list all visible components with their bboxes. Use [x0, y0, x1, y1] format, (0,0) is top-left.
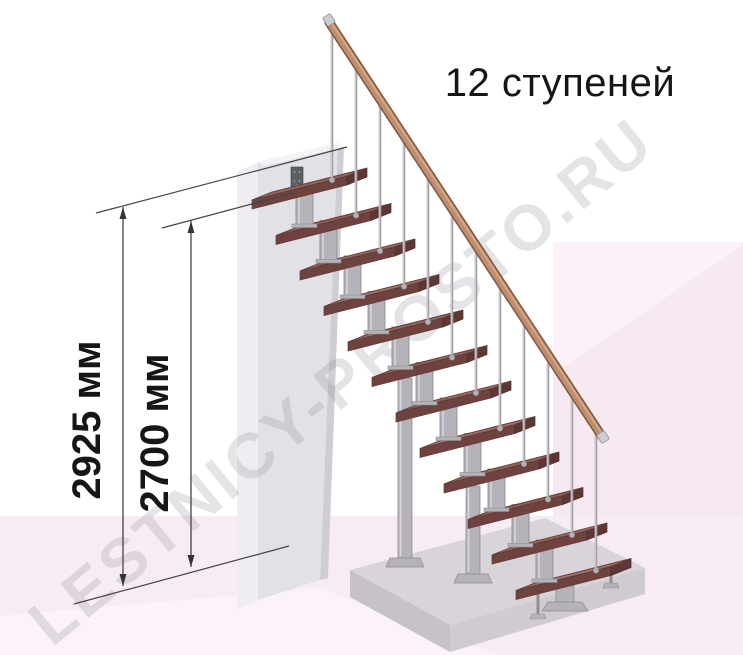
wall-left-face — [237, 162, 258, 610]
baluster-collar — [425, 319, 430, 324]
spine-module-flange — [508, 544, 533, 548]
spine-module-flange — [316, 260, 341, 264]
baluster-collar — [353, 213, 358, 218]
spine-module-flange — [388, 366, 413, 370]
baluster-collar — [521, 461, 526, 466]
baluster-collar — [329, 177, 334, 182]
spine-module-flange — [436, 437, 461, 441]
spine-module-flange — [532, 579, 557, 583]
baluster-collar — [473, 390, 478, 395]
support-column-mid-base-plate — [386, 558, 424, 567]
baluster-collar — [401, 284, 406, 289]
spine-module-flange — [412, 402, 437, 406]
baluster-collar — [449, 355, 454, 360]
spine-module-flange — [484, 508, 509, 512]
staircase-diagram-page: LESTNICY-PROSTO.RU 2925 мм 2700 мм 12 ст… — [0, 0, 743, 655]
baluster-collar — [569, 532, 574, 537]
support-column-lower-base-plate — [454, 574, 492, 583]
dimension-label-top-step-height: 2700 мм — [133, 353, 177, 512]
bracket-hole — [294, 171, 296, 173]
bracket-hole — [294, 180, 296, 182]
spine-module-flange — [460, 473, 485, 477]
front-leg-left-foot — [530, 614, 546, 619]
front-leg-right-foot — [603, 583, 619, 588]
baluster-collar — [545, 497, 550, 502]
staircase-diagram: LESTNICY-PROSTO.RU 2925 мм 2700 мм 12 ст… — [0, 0, 743, 655]
title-steps-count: 12 ступеней — [445, 61, 675, 105]
baluster-collar — [497, 426, 502, 431]
support-column-bottom-plate — [542, 602, 588, 611]
spine-module-flange — [340, 295, 365, 299]
baluster-collar — [593, 568, 598, 573]
spine-module-flange — [364, 331, 389, 335]
bracket-hole — [299, 171, 301, 173]
spine-module-flange — [292, 224, 317, 228]
dimension-label-total-height: 2925 мм — [65, 340, 109, 499]
baluster-collar — [377, 248, 382, 253]
bracket-hole — [299, 180, 301, 182]
